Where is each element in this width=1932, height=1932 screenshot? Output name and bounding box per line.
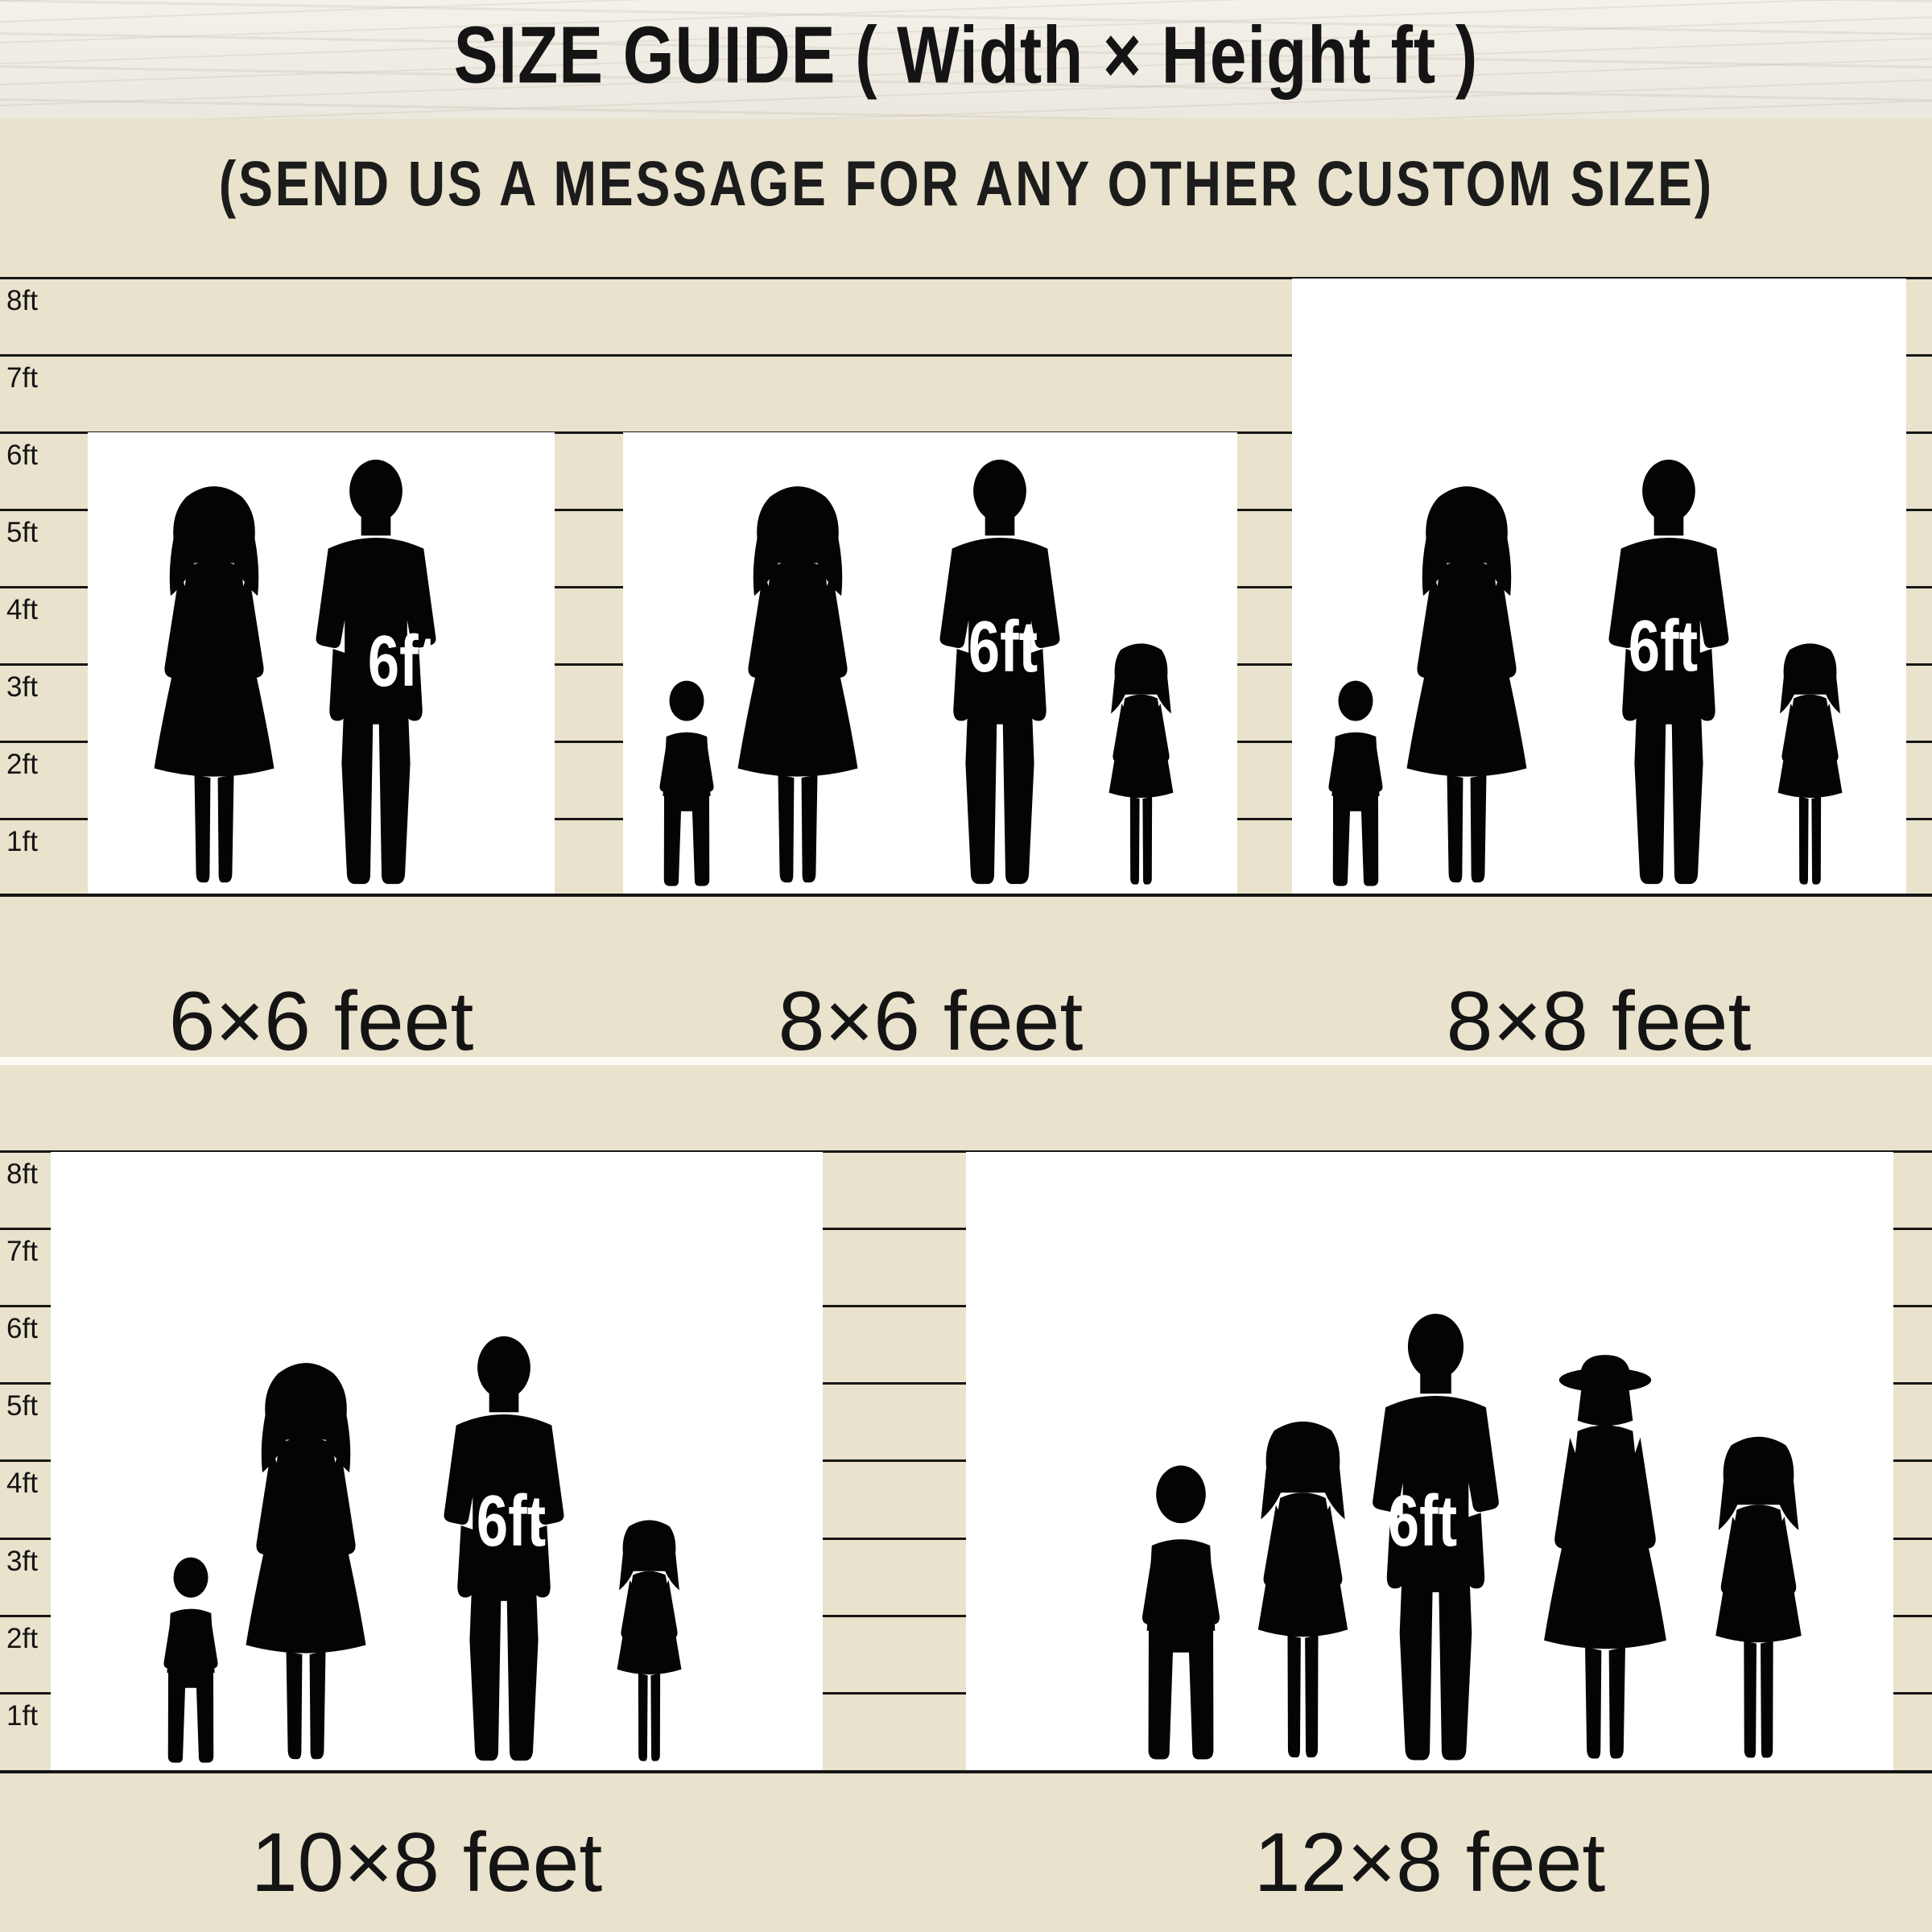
ruler-tick-label: 5ft (6, 517, 38, 549)
ruler-tick-label: 3ft (6, 671, 38, 704)
family-silhouette-five (966, 1152, 1893, 1770)
ruler-tick-label: 7ft (6, 362, 38, 394)
family-silhouette-four (1292, 279, 1906, 894)
section-divider (0, 1057, 1932, 1065)
family-silhouette-four (51, 1152, 823, 1770)
ruler-tick-label: 6ft (6, 1313, 38, 1345)
ruler-tick-label: 1ft (6, 826, 38, 858)
custom-size-note-text: (SEND US A MESSAGE FOR ANY OTHER CUSTOM … (218, 147, 1713, 220)
ruler-tick-label: 6ft (6, 440, 38, 472)
ruler-tick-label: 4ft (6, 594, 38, 626)
ruler-tick-label: 5ft (6, 1390, 38, 1422)
ruler-tick-label: 8ft (6, 1158, 38, 1191)
ruler-tick-label: 7ft (6, 1236, 38, 1268)
ruler-tick-label: 2ft (6, 1623, 38, 1655)
size-box-6x6: 6ft (88, 432, 555, 894)
size-box-10x8: 6ft (51, 1152, 823, 1770)
size-label: 8×6 feet (778, 974, 1084, 1070)
size-label: 12×8 feet (1254, 1815, 1606, 1911)
height-marker: 6ft (1380, 1482, 1464, 1562)
size-label: 10×8 feet (251, 1815, 603, 1911)
ruler-tick-label: 1ft (6, 1700, 38, 1732)
family-silhouette-couple (88, 432, 555, 894)
ruler-tick-label: 3ft (6, 1546, 38, 1578)
size-box-8x8: 6ft (1292, 279, 1906, 894)
ground-line (0, 894, 1932, 897)
size-box-8x6: 6ft (623, 432, 1237, 894)
size-guide-infographic: SIZE GUIDE ( Width × Height ft ) (SEND U… (0, 0, 1932, 1932)
ruler-tick-label: 4ft (6, 1468, 38, 1500)
ruler-tick-label: 8ft (6, 285, 38, 317)
custom-size-note: (SEND US A MESSAGE FOR ANY OTHER CUSTOM … (0, 151, 1932, 216)
height-marker: 6ft (960, 608, 1045, 687)
page-title-text: SIZE GUIDE ( Width × Height ft ) (454, 10, 1479, 102)
height-marker: 6ft (360, 622, 444, 702)
family-silhouette-four (623, 432, 1237, 894)
ruler-tick-label: 2ft (6, 749, 38, 781)
size-label: 8×8 feet (1447, 974, 1752, 1070)
height-marker: 6ft (1620, 607, 1705, 687)
size-box-12x8: 6ft (966, 1152, 1893, 1770)
page-title: SIZE GUIDE ( Width × Height ft ) (0, 10, 1932, 85)
size-label: 6×6 feet (169, 974, 474, 1070)
ground-line (0, 1770, 1932, 1773)
height-marker: 6ft (469, 1482, 553, 1562)
